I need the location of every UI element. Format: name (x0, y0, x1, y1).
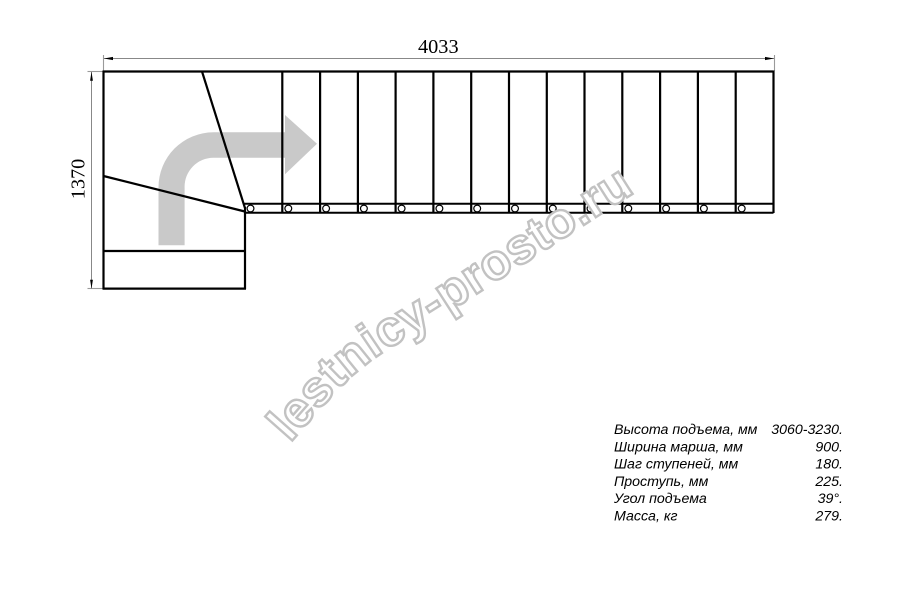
svg-text:279.: 279. (814, 509, 843, 525)
svg-text:Проступь, мм: Проступь, мм (614, 474, 709, 490)
svg-text:Высота подъема, мм: Высота подъема, мм (614, 422, 758, 438)
svg-text:Шаг ступеней, мм: Шаг ступеней, мм (614, 457, 738, 473)
svg-text:1370: 1370 (68, 159, 90, 200)
svg-text:180.: 180. (815, 457, 843, 473)
svg-text:Ширина марша, мм: Ширина марша, мм (614, 439, 743, 455)
svg-text:3060-3230.: 3060-3230. (771, 422, 843, 438)
svg-text:Масса, кг: Масса, кг (614, 509, 678, 525)
svg-text:225.: 225. (814, 474, 843, 490)
svg-text:39°.: 39°. (818, 491, 843, 507)
svg-text:4033: 4033 (418, 36, 459, 58)
svg-text:Угол подъема: Угол подъема (613, 491, 707, 507)
svg-text:900.: 900. (815, 439, 843, 455)
